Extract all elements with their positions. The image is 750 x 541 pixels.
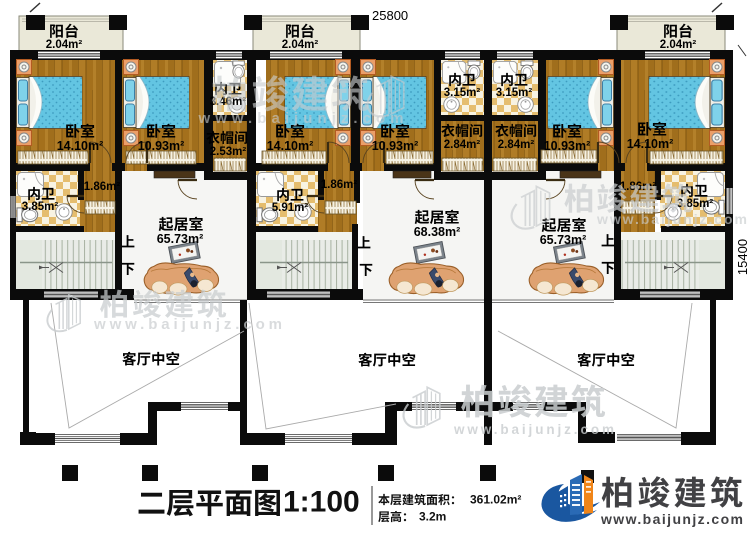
svg-text:361.02m²: 361.02m² <box>470 492 521 506</box>
svg-text:3.2m: 3.2m <box>419 509 446 523</box>
svg-text:3.15m²: 3.15m² <box>496 87 533 99</box>
svg-text:65.73m²: 65.73m² <box>157 232 204 246</box>
svg-text:2.04m²: 2.04m² <box>660 39 697 51</box>
svg-text:5.91m²: 5.91m² <box>272 202 309 214</box>
svg-text:2.53m²: 2.53m² <box>210 146 247 158</box>
svg-text:2.04m²: 2.04m² <box>46 39 83 51</box>
svg-text:2.84m²: 2.84m² <box>498 139 535 151</box>
svg-text:3.15m²: 3.15m² <box>444 87 481 99</box>
svg-text:10.93m²: 10.93m² <box>138 139 185 153</box>
svg-text:2.04m²: 2.04m² <box>282 39 319 51</box>
svg-text:65.73m²: 65.73m² <box>540 233 587 247</box>
svg-text:14.10m²: 14.10m² <box>267 139 314 153</box>
svg-text:1.86m²: 1.86m² <box>84 181 121 193</box>
svg-text:15400: 15400 <box>735 239 750 275</box>
svg-text:1.86m²: 1.86m² <box>321 179 358 191</box>
svg-text:www.baijunjz.com: www.baijunjz.com <box>600 511 743 527</box>
svg-text:14.10m²: 14.10m² <box>57 139 104 153</box>
svg-text:10.93m²: 10.93m² <box>372 139 419 153</box>
svg-text:25800: 25800 <box>372 8 408 23</box>
svg-text:10.93m²: 10.93m² <box>544 139 591 153</box>
svg-text:2.84m²: 2.84m² <box>444 139 481 151</box>
svg-text:68.38m²: 68.38m² <box>414 225 461 239</box>
svg-text:14.10m²: 14.10m² <box>627 137 674 151</box>
svg-text:3.85m²: 3.85m² <box>22 201 59 213</box>
svg-text:1:100: 1:100 <box>283 485 360 518</box>
